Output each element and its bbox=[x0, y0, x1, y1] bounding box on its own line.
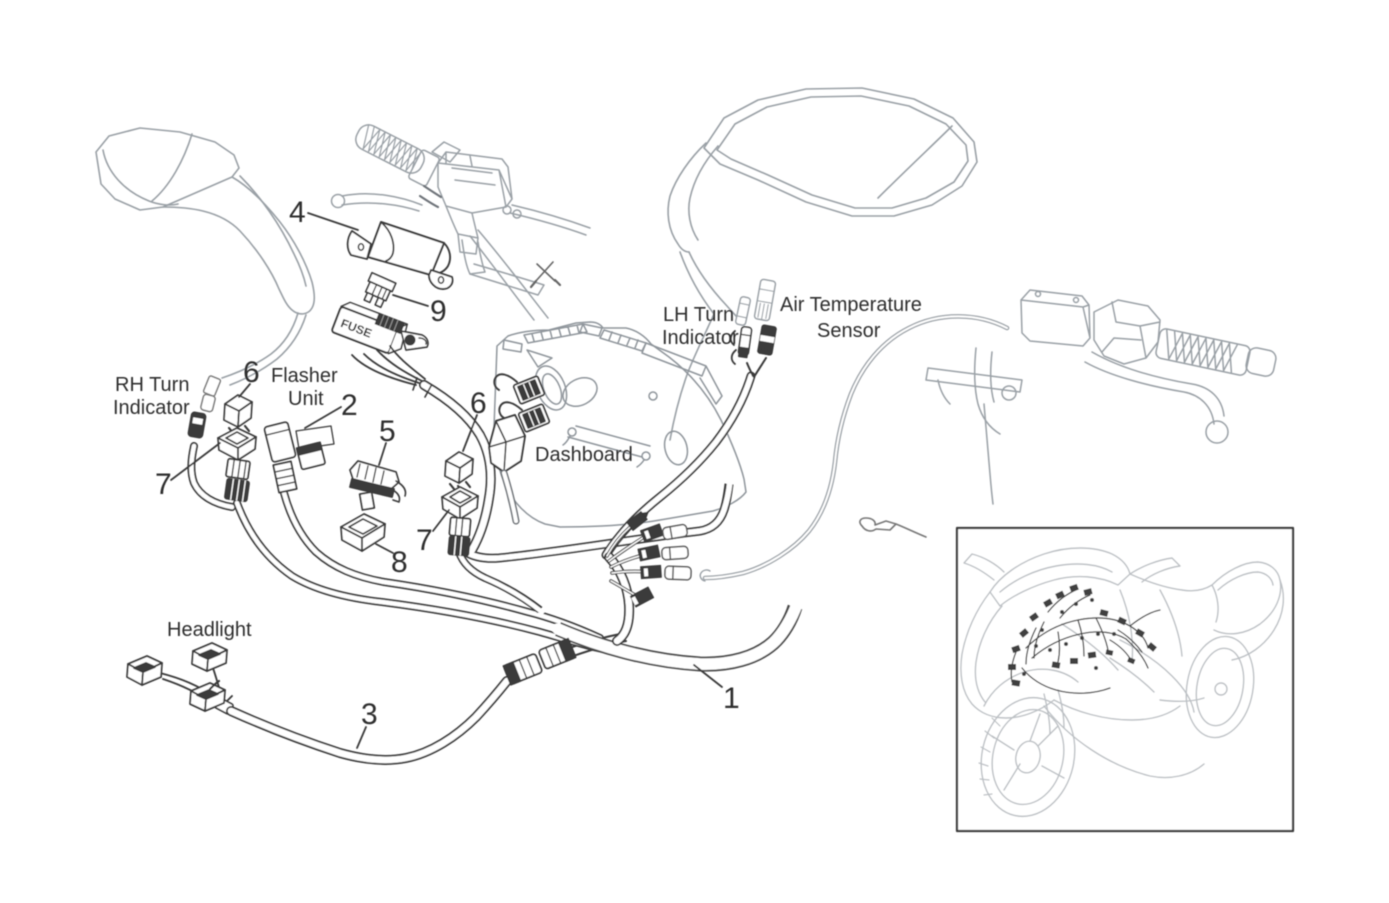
svg-text:LH Turn: LH Turn bbox=[663, 304, 734, 326]
svg-text:7: 7 bbox=[155, 468, 172, 501]
svg-text:2: 2 bbox=[341, 389, 358, 422]
svg-text:Indicator: Indicator bbox=[113, 397, 190, 419]
svg-text:Flasher: Flasher bbox=[271, 365, 338, 387]
svg-text:RH Turn: RH Turn bbox=[115, 374, 189, 396]
svg-text:Unit: Unit bbox=[288, 388, 324, 410]
svg-text:6: 6 bbox=[243, 356, 260, 389]
svg-text:7: 7 bbox=[416, 524, 433, 557]
svg-text:9: 9 bbox=[430, 295, 447, 328]
svg-text:1: 1 bbox=[723, 682, 740, 715]
svg-text:Headlight: Headlight bbox=[167, 619, 252, 641]
svg-text:Dashboard: Dashboard bbox=[535, 444, 633, 466]
svg-text:3: 3 bbox=[361, 698, 378, 731]
svg-text:6: 6 bbox=[470, 387, 487, 420]
svg-text:4: 4 bbox=[289, 196, 306, 229]
svg-text:5: 5 bbox=[379, 415, 396, 448]
svg-text:8: 8 bbox=[391, 546, 408, 579]
svg-text:Indicator: Indicator bbox=[662, 327, 739, 349]
svg-text:Sensor: Sensor bbox=[817, 320, 881, 342]
svg-text:Air Temperature: Air Temperature bbox=[780, 294, 922, 316]
